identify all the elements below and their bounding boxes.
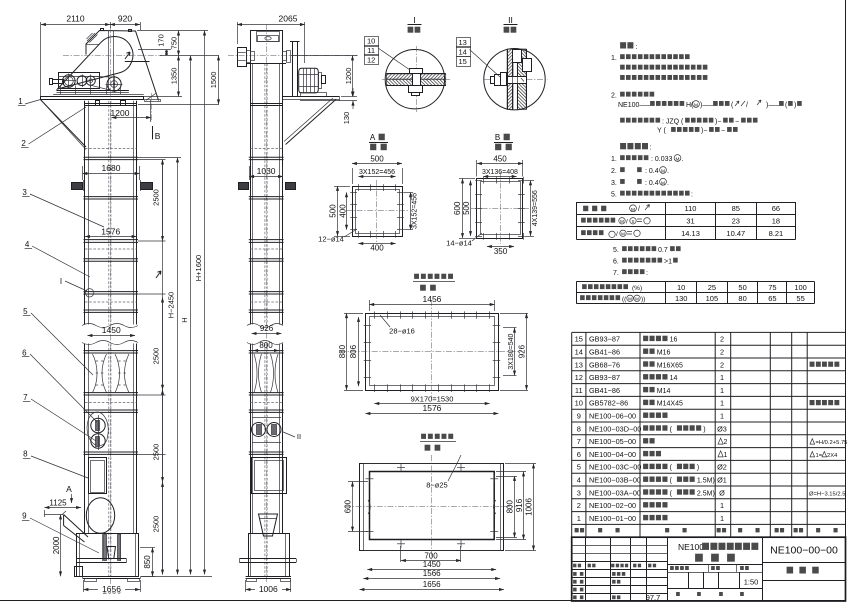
svg-text:B: B bbox=[155, 131, 161, 141]
svg-text:M14: M14 bbox=[657, 388, 671, 395]
svg-text:H−2450: H−2450 bbox=[167, 292, 176, 318]
svg-text:1576: 1576 bbox=[422, 403, 441, 413]
svg-text:8: 8 bbox=[23, 450, 28, 459]
svg-text:1: 1 bbox=[720, 501, 724, 510]
svg-text:1: 1 bbox=[720, 373, 724, 382]
svg-text:450: 450 bbox=[493, 155, 507, 164]
svg-text::: : bbox=[646, 270, 648, 277]
svg-text:Ø1: Ø1 bbox=[717, 476, 727, 485]
svg-text:12−ø14: 12−ø14 bbox=[318, 235, 344, 244]
svg-text:11: 11 bbox=[575, 386, 583, 395]
svg-text:GB41−86: GB41−86 bbox=[589, 348, 620, 357]
svg-text:916: 916 bbox=[515, 498, 524, 512]
svg-text:GB93−87: GB93−87 bbox=[589, 335, 620, 344]
svg-text:3X152=456: 3X152=456 bbox=[359, 169, 395, 176]
svg-text:Ø2: Ø2 bbox=[717, 463, 727, 472]
svg-text:2.: 2. bbox=[611, 93, 617, 100]
svg-text:/: / bbox=[638, 206, 640, 213]
svg-text:II: II bbox=[508, 15, 513, 25]
svg-text:1200: 1200 bbox=[111, 108, 130, 118]
svg-text:1656: 1656 bbox=[423, 580, 441, 589]
svg-text:100: 100 bbox=[794, 283, 807, 292]
svg-text:400: 400 bbox=[370, 244, 384, 253]
svg-text:11: 11 bbox=[367, 46, 375, 55]
svg-text:2.: 2. bbox=[611, 168, 617, 175]
svg-text:97.7: 97.7 bbox=[646, 593, 661, 602]
svg-text:A: A bbox=[370, 133, 376, 142]
svg-text:14: 14 bbox=[670, 375, 678, 382]
svg-text:15: 15 bbox=[575, 335, 583, 344]
svg-text:12: 12 bbox=[575, 373, 583, 382]
svg-text:4X139=556: 4X139=556 bbox=[532, 190, 539, 226]
svg-text:1680: 1680 bbox=[102, 163, 121, 173]
svg-text:1.: 1. bbox=[611, 156, 617, 163]
svg-text:M: M bbox=[631, 207, 635, 213]
svg-text:M: M bbox=[694, 103, 698, 109]
svg-text:M: M bbox=[628, 297, 632, 302]
svg-text:)−: )− bbox=[715, 119, 721, 126]
svg-text:2: 2 bbox=[720, 348, 724, 357]
svg-text:16: 16 bbox=[670, 337, 678, 344]
svg-text:13: 13 bbox=[575, 360, 583, 369]
svg-text:8.21: 8.21 bbox=[769, 229, 784, 238]
svg-text:55: 55 bbox=[796, 294, 804, 303]
svg-text:1: 1 bbox=[577, 514, 581, 523]
svg-text:6: 6 bbox=[577, 450, 581, 459]
svg-text:Ø: Ø bbox=[719, 488, 725, 497]
svg-text:5: 5 bbox=[23, 307, 28, 316]
svg-text:13: 13 bbox=[459, 38, 467, 47]
svg-text:NE100−05−00: NE100−05−00 bbox=[589, 437, 636, 446]
svg-text:5.: 5. bbox=[611, 192, 617, 199]
svg-text:8−ø25: 8−ø25 bbox=[426, 481, 447, 490]
svg-text:.: . bbox=[682, 156, 684, 163]
svg-text:4: 4 bbox=[25, 240, 30, 249]
svg-text:170: 170 bbox=[157, 34, 166, 47]
svg-text:M: M bbox=[661, 169, 665, 175]
svg-text:−: − bbox=[735, 119, 739, 126]
svg-text:NE100−00−00: NE100−00−00 bbox=[770, 545, 838, 557]
svg-text:14: 14 bbox=[459, 48, 467, 57]
svg-text:Y (: Y ( bbox=[657, 128, 666, 135]
svg-text:1656: 1656 bbox=[102, 584, 121, 594]
svg-text:M: M bbox=[661, 180, 665, 186]
svg-text:): ) bbox=[697, 465, 699, 472]
svg-text:80: 80 bbox=[738, 294, 746, 303]
svg-text:14.13: 14.13 bbox=[681, 229, 700, 238]
svg-text:8: 8 bbox=[577, 424, 581, 433]
svg-text:2: 2 bbox=[724, 439, 728, 446]
svg-text:9X170=1530: 9X170=1530 bbox=[411, 394, 454, 403]
svg-text:1030: 1030 bbox=[257, 166, 276, 176]
svg-text:II: II bbox=[297, 432, 301, 441]
svg-text:/: / bbox=[746, 102, 748, 109]
svg-text:M: M bbox=[635, 297, 639, 302]
svg-text:2500: 2500 bbox=[152, 444, 161, 461]
svg-text:I: I bbox=[413, 15, 415, 25]
svg-text:1: 1 bbox=[720, 514, 724, 523]
svg-text:28−ø16: 28−ø16 bbox=[389, 327, 415, 336]
svg-text:9: 9 bbox=[577, 412, 581, 421]
svg-text:800: 800 bbox=[505, 500, 514, 514]
svg-text:: 0.4: : 0.4 bbox=[645, 168, 659, 175]
svg-text:75: 75 bbox=[768, 283, 776, 292]
svg-text:500: 500 bbox=[370, 155, 384, 164]
svg-text:50: 50 bbox=[738, 283, 746, 292]
svg-text:25: 25 bbox=[708, 283, 716, 292]
svg-text:23: 23 bbox=[732, 217, 740, 226]
svg-text:2: 2 bbox=[577, 501, 581, 510]
svg-text:806: 806 bbox=[349, 344, 358, 358]
svg-text:1: 1 bbox=[720, 399, 724, 408]
svg-text:1:50: 1:50 bbox=[744, 578, 759, 587]
svg-text:3: 3 bbox=[577, 488, 581, 497]
svg-text:600: 600 bbox=[344, 499, 353, 513]
svg-text:926: 926 bbox=[260, 324, 274, 333]
svg-text:=H/0.2+5.75: =H/0.2+5.75 bbox=[816, 440, 848, 446]
svg-text:7.: 7. bbox=[613, 270, 619, 277]
svg-text:S: S bbox=[631, 219, 634, 224]
svg-text:)−: )− bbox=[701, 128, 707, 135]
svg-text:800: 800 bbox=[259, 341, 273, 350]
svg-text:920: 920 bbox=[118, 14, 132, 24]
svg-text:1: 1 bbox=[724, 452, 728, 459]
svg-text:: 0.033: : 0.033 bbox=[651, 156, 673, 163]
svg-text:1.: 1. bbox=[611, 55, 617, 62]
svg-text:1450: 1450 bbox=[102, 325, 121, 335]
svg-text:10: 10 bbox=[677, 283, 685, 292]
svg-text:2: 2 bbox=[21, 139, 26, 148]
svg-text:B: B bbox=[495, 133, 500, 142]
svg-text:/: / bbox=[616, 231, 618, 238]
svg-text:2500: 2500 bbox=[152, 348, 161, 365]
svg-text:1500: 1500 bbox=[209, 72, 218, 89]
svg-text:GB41−86: GB41−86 bbox=[589, 386, 620, 395]
svg-text:M: M bbox=[676, 157, 680, 163]
svg-text:(%): (%) bbox=[632, 285, 642, 292]
svg-text:5.: 5. bbox=[613, 247, 619, 254]
svg-text:750: 750 bbox=[169, 37, 178, 50]
svg-text:880: 880 bbox=[338, 344, 347, 358]
svg-text:NE100−06−00: NE100−06−00 bbox=[589, 412, 636, 421]
svg-text:110: 110 bbox=[685, 204, 697, 213]
svg-text:): ) bbox=[703, 426, 705, 433]
svg-text:M16X65: M16X65 bbox=[657, 362, 683, 369]
svg-text:400: 400 bbox=[339, 204, 348, 218]
svg-text:3X180=540: 3X180=540 bbox=[508, 333, 515, 369]
svg-text:H+1600: H+1600 bbox=[194, 255, 203, 281]
svg-text:10: 10 bbox=[367, 37, 375, 46]
svg-text:3X152=456: 3X152=456 bbox=[411, 193, 418, 229]
svg-text:NE100−03A−00: NE100−03A−00 bbox=[589, 488, 641, 497]
svg-text:2.5M): 2.5M) bbox=[697, 490, 715, 497]
svg-text:2500: 2500 bbox=[152, 189, 161, 206]
svg-text:M14X45: M14X45 bbox=[657, 401, 683, 408]
svg-text:12: 12 bbox=[367, 56, 375, 65]
svg-text:600: 600 bbox=[453, 201, 462, 215]
svg-text:500: 500 bbox=[462, 201, 471, 215]
svg-text:NE100−01−00: NE100−01−00 bbox=[589, 514, 636, 523]
svg-text:0.7: 0.7 bbox=[658, 247, 668, 254]
svg-text:6: 6 bbox=[22, 348, 27, 357]
svg-text:1: 1 bbox=[720, 386, 724, 395]
svg-text::: : bbox=[636, 42, 638, 51]
svg-text:2000: 2000 bbox=[52, 536, 61, 554]
svg-text:1456: 1456 bbox=[422, 294, 441, 304]
svg-text:4: 4 bbox=[577, 476, 581, 485]
svg-text:1.5M): 1.5M) bbox=[697, 478, 715, 485]
svg-text:NE100——: NE100—— bbox=[618, 102, 653, 109]
svg-text:H: H bbox=[180, 317, 189, 322]
svg-text:1006: 1006 bbox=[259, 584, 278, 594]
svg-text:Ø3: Ø3 bbox=[717, 424, 727, 433]
svg-text:14−ø14: 14−ø14 bbox=[446, 239, 472, 248]
svg-text:NE100−03D−00: NE100−03D−00 bbox=[589, 424, 641, 433]
svg-text:2065: 2065 bbox=[279, 14, 298, 24]
svg-text:9: 9 bbox=[22, 512, 27, 521]
svg-text:66: 66 bbox=[772, 204, 780, 213]
svg-text:/: / bbox=[626, 219, 628, 226]
svg-text:15: 15 bbox=[459, 57, 467, 66]
svg-text:M: M bbox=[621, 232, 625, 237]
svg-text:NE100−03B−00: NE100−03B−00 bbox=[589, 476, 641, 485]
svg-text:1: 1 bbox=[720, 412, 724, 421]
svg-text:M16: M16 bbox=[657, 350, 671, 357]
svg-text:7: 7 bbox=[577, 437, 581, 446]
svg-text:1566: 1566 bbox=[423, 569, 441, 578]
svg-text:2110: 2110 bbox=[66, 14, 85, 24]
svg-text:: JZQ (: : JZQ ( bbox=[662, 119, 684, 126]
svg-text:NE100: NE100 bbox=[678, 542, 704, 552]
svg-text:1200: 1200 bbox=[344, 68, 353, 85]
svg-text:105: 105 bbox=[706, 294, 719, 303]
svg-text:NE100−03C−00: NE100−03C−00 bbox=[589, 463, 641, 472]
svg-text::: : bbox=[650, 143, 652, 152]
svg-text:6.: 6. bbox=[613, 259, 619, 266]
svg-text:2X4: 2X4 bbox=[827, 453, 838, 459]
svg-text:>1: >1 bbox=[664, 259, 672, 266]
svg-text:1350: 1350 bbox=[169, 68, 178, 85]
svg-text:1450: 1450 bbox=[423, 560, 441, 569]
svg-text:85: 85 bbox=[732, 204, 740, 213]
svg-text:2: 2 bbox=[720, 360, 724, 369]
svg-text:M: M bbox=[620, 219, 624, 224]
svg-text:1=: 1= bbox=[816, 453, 823, 459]
svg-text:926: 926 bbox=[518, 344, 527, 358]
svg-text:500: 500 bbox=[329, 204, 338, 218]
svg-text:130: 130 bbox=[675, 294, 688, 303]
svg-text:Ø=H−3.15/2.5: Ø=H−3.15/2.5 bbox=[809, 491, 845, 497]
svg-text:A: A bbox=[66, 484, 72, 494]
svg-text:.: . bbox=[667, 180, 669, 187]
svg-text:3: 3 bbox=[22, 188, 27, 197]
svg-text:18: 18 bbox=[772, 217, 780, 226]
svg-text:14: 14 bbox=[575, 348, 583, 357]
svg-text:.: . bbox=[667, 168, 669, 175]
svg-text:3X136=408: 3X136=408 bbox=[482, 169, 518, 176]
svg-text:10: 10 bbox=[575, 399, 583, 408]
svg-text:NE100−02−00: NE100−02−00 bbox=[589, 501, 636, 510]
svg-text:3.: 3. bbox=[611, 180, 617, 187]
svg-text:I: I bbox=[60, 277, 62, 286]
svg-text:1006: 1006 bbox=[524, 498, 533, 516]
svg-text:−: − bbox=[721, 128, 725, 135]
svg-text:5: 5 bbox=[577, 463, 581, 472]
svg-text:GB5782−86: GB5782−86 bbox=[589, 399, 628, 408]
svg-text:130: 130 bbox=[342, 112, 351, 125]
svg-text:)): )) bbox=[641, 296, 645, 303]
svg-text:1576: 1576 bbox=[101, 227, 120, 237]
svg-text:: 0.4: : 0.4 bbox=[645, 180, 659, 187]
svg-text:850: 850 bbox=[143, 555, 152, 569]
svg-text:GB68−76: GB68−76 bbox=[589, 360, 620, 369]
svg-text:7: 7 bbox=[23, 393, 28, 402]
svg-text:2500: 2500 bbox=[152, 516, 161, 533]
svg-text:1: 1 bbox=[18, 97, 23, 106]
svg-text:65: 65 bbox=[768, 294, 776, 303]
svg-text:1125: 1125 bbox=[49, 499, 67, 508]
svg-text:GB93−87: GB93−87 bbox=[589, 373, 620, 382]
svg-text:31: 31 bbox=[686, 217, 694, 226]
svg-text:350: 350 bbox=[494, 247, 508, 256]
svg-text:10.47: 10.47 bbox=[726, 229, 745, 238]
svg-text:NE100−04−00: NE100−04−00 bbox=[589, 450, 636, 459]
svg-text:): ) bbox=[794, 102, 796, 109]
svg-text::: : bbox=[691, 192, 693, 199]
svg-text:2: 2 bbox=[720, 335, 724, 344]
